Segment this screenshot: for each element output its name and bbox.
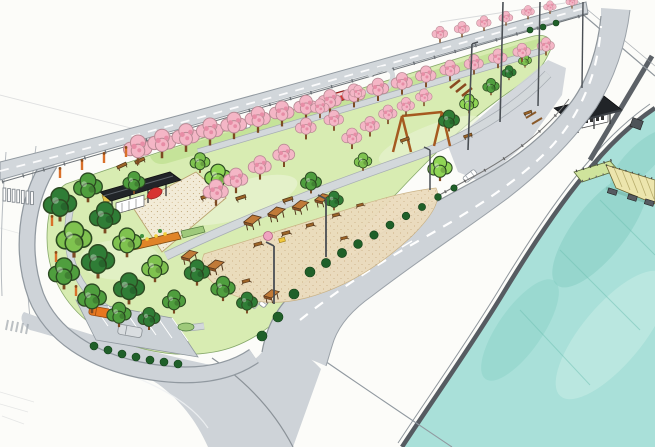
lamp-post [125, 146, 128, 157]
pink-play-dome [264, 232, 273, 241]
park-rendering [0, 0, 655, 447]
lamp-post [51, 215, 54, 226]
parking-green-island [178, 323, 194, 331]
lamp-post [81, 159, 84, 170]
lamp-post [75, 285, 78, 296]
illustration-canvas [0, 0, 655, 447]
lamp-post [59, 167, 62, 178]
light-mast [582, 2, 583, 88]
lamp-post [55, 251, 58, 262]
lamp-post [103, 152, 106, 163]
